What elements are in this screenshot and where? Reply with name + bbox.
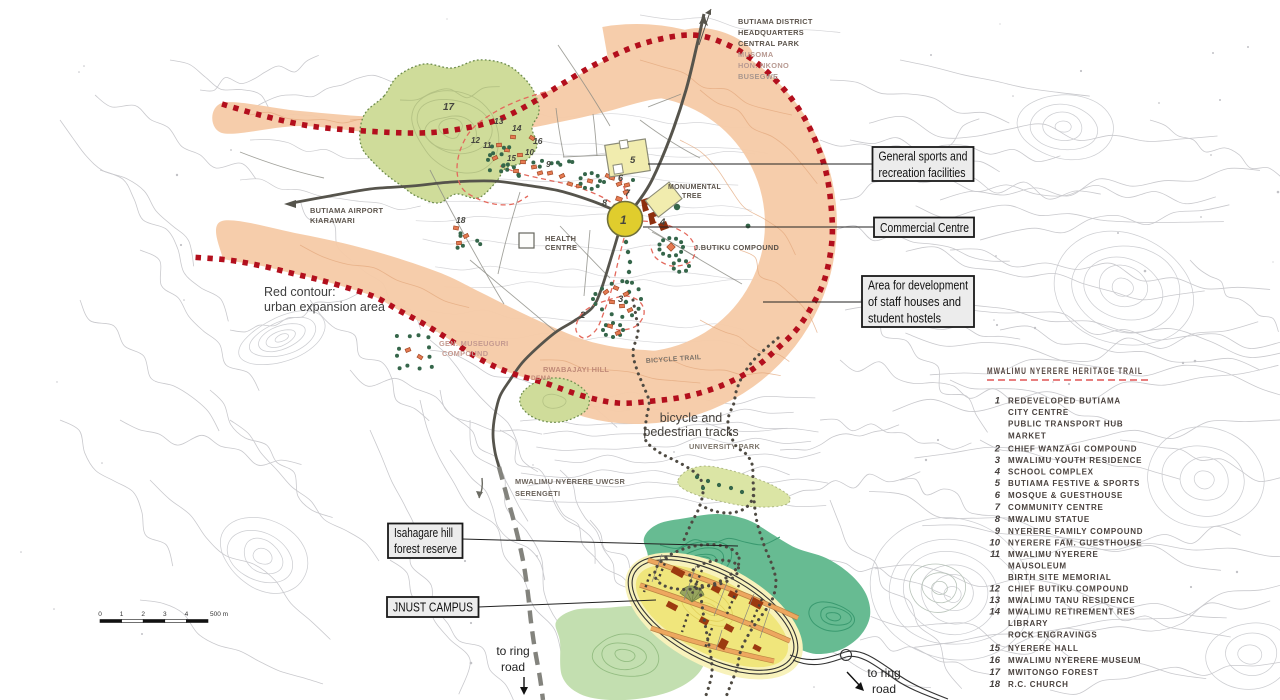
svg-text:0: 0 xyxy=(98,611,102,618)
svg-text:MWALIMU NYERERE MUSEUM: MWALIMU NYERERE MUSEUM xyxy=(1008,656,1141,665)
svg-text:10: 10 xyxy=(525,148,534,157)
svg-text:bicycle and: bicycle and xyxy=(660,411,723,425)
svg-text:RWABAJAYI HILL: RWABAJAYI HILL xyxy=(543,365,609,374)
svg-text:CITY CENTRE: CITY CENTRE xyxy=(1008,408,1069,417)
svg-text:NYERERE FAM. GUESTHOUSE: NYERERE FAM. GUESTHOUSE xyxy=(1008,539,1142,548)
svg-text:MWALIMU YOUTH RESIDENCE: MWALIMU YOUTH RESIDENCE xyxy=(1008,456,1142,465)
svg-text:3: 3 xyxy=(995,455,1001,466)
svg-text:11: 11 xyxy=(990,549,1000,560)
svg-text:MOSQUE & GUESTHOUSE: MOSQUE & GUESTHOUSE xyxy=(1008,491,1123,500)
svg-text:Area for development: Area for development xyxy=(868,278,968,293)
svg-text:TREE: TREE xyxy=(682,193,702,200)
svg-text:ROCK ENGRAVINGS: ROCK ENGRAVINGS xyxy=(1008,631,1097,640)
svg-text:12: 12 xyxy=(471,136,480,145)
svg-text:BUTIAMA AIRPORT: BUTIAMA AIRPORT xyxy=(310,206,384,215)
svg-text:COMMUNITY CENTRE: COMMUNITY CENTRE xyxy=(1008,503,1104,512)
svg-text:MARKET: MARKET xyxy=(1008,431,1046,440)
svg-text:1: 1 xyxy=(995,396,1000,407)
svg-text:CHIEF BUTIKU COMPOUND: CHIEF BUTIKU COMPOUND xyxy=(1008,585,1129,594)
svg-text:2: 2 xyxy=(141,611,145,618)
svg-text:NYERERE FAMILY COMPOUND: NYERERE FAMILY COMPOUND xyxy=(1008,527,1143,536)
svg-text:HEADQUARTERS: HEADQUARTERS xyxy=(738,28,804,37)
svg-text:recreation facilities: recreation facilities xyxy=(879,165,966,180)
svg-text:PUBLIC TRANSPORT HUB: PUBLIC TRANSPORT HUB xyxy=(1008,420,1123,429)
svg-text:18: 18 xyxy=(989,679,1000,690)
svg-text:LIBRARY: LIBRARY xyxy=(1008,619,1048,628)
svg-text:J.BUTIKU COMPOUND: J.BUTIKU COMPOUND xyxy=(694,243,780,252)
svg-text:Commercial Centre: Commercial Centre xyxy=(880,220,969,235)
svg-text:Red contour:: Red contour: xyxy=(264,285,336,299)
svg-text:COMPOUND: COMPOUND xyxy=(442,349,489,358)
svg-text:18: 18 xyxy=(456,215,466,225)
svg-text:of staff houses and: of staff houses and xyxy=(868,294,961,309)
svg-text:9: 9 xyxy=(546,159,551,169)
svg-text:15: 15 xyxy=(989,643,1000,654)
svg-text:GEN. MUSEUGURI: GEN. MUSEUGURI xyxy=(439,339,509,348)
svg-text:8: 8 xyxy=(602,198,607,208)
svg-text:SERENGETI: SERENGETI xyxy=(515,489,560,498)
svg-text:urban expansion area: urban expansion area xyxy=(264,300,385,314)
svg-text:KIARAWARI: KIARAWARI xyxy=(310,216,355,225)
svg-text:BUTIAMA FESTIVE & SPORTS: BUTIAMA FESTIVE & SPORTS xyxy=(1008,479,1140,488)
svg-text:pedestrian tracks: pedestrian tracks xyxy=(643,425,738,439)
svg-text:8: 8 xyxy=(995,514,1001,525)
svg-text:MAUSOLEUM: MAUSOLEUM xyxy=(1008,562,1067,571)
svg-text:MWITONGO FOREST: MWITONGO FOREST xyxy=(1008,668,1099,677)
svg-text:HEALTH: HEALTH xyxy=(545,234,576,243)
svg-text:road: road xyxy=(501,660,525,674)
svg-text:General sports and: General sports and xyxy=(879,148,968,163)
svg-text:4: 4 xyxy=(994,467,1001,478)
svg-text:15: 15 xyxy=(507,154,516,163)
svg-text:2: 2 xyxy=(579,310,586,321)
svg-text:3: 3 xyxy=(163,611,167,618)
svg-text:CENTRE: CENTRE xyxy=(545,243,577,252)
svg-text:MONUMENTAL: MONUMENTAL xyxy=(668,184,721,191)
svg-text:to ring: to ring xyxy=(496,644,529,658)
svg-text:4: 4 xyxy=(185,611,189,618)
svg-text:14: 14 xyxy=(989,607,1000,618)
svg-text:3: 3 xyxy=(618,294,624,305)
svg-text:DEMA: DEMA xyxy=(531,375,551,382)
svg-text:UNIVERSITY PARK: UNIVERSITY PARK xyxy=(689,442,761,451)
svg-text:11: 11 xyxy=(483,141,492,150)
svg-text:MWALIMU NYERERE: MWALIMU NYERERE xyxy=(1008,550,1099,559)
svg-text:Isahagare hill: Isahagare hill xyxy=(394,526,453,540)
svg-text:REDEVELOPED BUTIAMA: REDEVELOPED BUTIAMA xyxy=(1008,397,1121,406)
svg-text:MWALIMU NYERERE UWCSR: MWALIMU NYERERE UWCSR xyxy=(515,477,626,486)
svg-text:13: 13 xyxy=(494,116,504,126)
svg-text:1: 1 xyxy=(120,611,124,618)
svg-text:CENTRAL PARK: CENTRAL PARK xyxy=(738,39,800,48)
svg-text:5: 5 xyxy=(630,155,636,166)
svg-text:17: 17 xyxy=(989,667,1000,678)
svg-text:12: 12 xyxy=(989,584,1000,595)
svg-text:2: 2 xyxy=(994,444,1001,455)
svg-text:student hostels: student hostels xyxy=(868,311,941,326)
svg-text:10: 10 xyxy=(989,538,1000,549)
svg-text:to ring: to ring xyxy=(867,666,900,680)
svg-text:JNUST CAMPUS: JNUST CAMPUS xyxy=(393,600,473,614)
svg-text:17: 17 xyxy=(443,102,455,113)
svg-text:1: 1 xyxy=(620,213,627,227)
svg-text:14: 14 xyxy=(512,123,522,133)
svg-text:9: 9 xyxy=(995,526,1001,537)
svg-text:MWALIMU STATUE: MWALIMU STATUE xyxy=(1008,515,1090,524)
svg-text:BUTIAMA DISTRICT: BUTIAMA DISTRICT xyxy=(738,17,813,26)
svg-text:6: 6 xyxy=(995,490,1001,501)
svg-text:13: 13 xyxy=(989,595,1000,606)
svg-text:5: 5 xyxy=(995,478,1001,489)
svg-text:CHIEF WANZAGI COMPOUND: CHIEF WANZAGI COMPOUND xyxy=(1008,445,1137,454)
svg-text:MWALIMU TANU RESIDENCE: MWALIMU TANU RESIDENCE xyxy=(1008,596,1135,605)
svg-text:HON. NKONO: HON. NKONO xyxy=(738,61,789,70)
svg-text:forest reserve: forest reserve xyxy=(394,542,457,556)
svg-text:16: 16 xyxy=(989,655,1000,666)
svg-text:MWALIMU NYERERE HERITAGE TRAIL: MWALIMU NYERERE HERITAGE TRAIL xyxy=(987,366,1143,377)
svg-text:500 m: 500 m xyxy=(210,611,228,618)
svg-text:R.C. CHURCH: R.C. CHURCH xyxy=(1008,680,1069,689)
svg-text:MUSOMA: MUSOMA xyxy=(738,50,774,59)
svg-text:road: road xyxy=(872,682,896,696)
svg-text:NYERERE HALL: NYERERE HALL xyxy=(1008,644,1079,653)
svg-text:BIRTH SITE MEMORIAL: BIRTH SITE MEMORIAL xyxy=(1008,573,1112,582)
svg-text:4: 4 xyxy=(659,217,666,228)
svg-text:16: 16 xyxy=(533,136,543,146)
svg-text:MWALIMU RETIREMENT RES: MWALIMU RETIREMENT RES xyxy=(1008,608,1135,617)
svg-text:BUSEGWE: BUSEGWE xyxy=(738,72,778,81)
svg-text:SCHOOL COMPLEX: SCHOOL COMPLEX xyxy=(1008,468,1094,477)
svg-text:7: 7 xyxy=(995,502,1001,513)
